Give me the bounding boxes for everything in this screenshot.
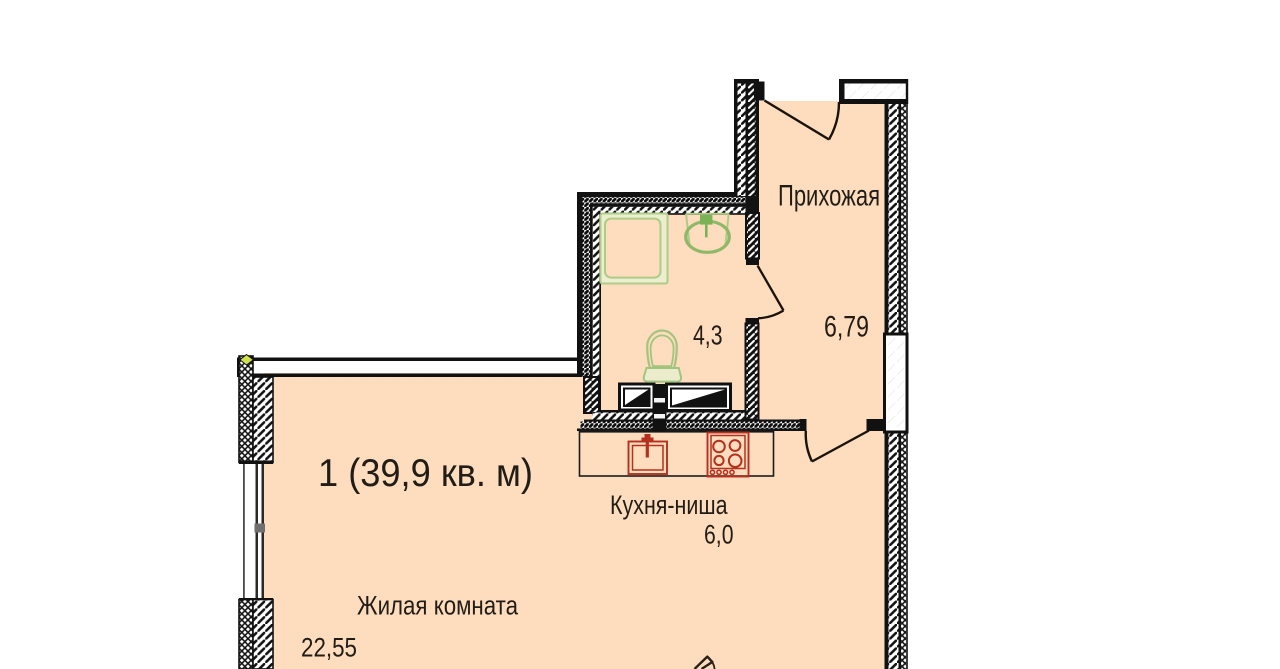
svg-text:Прихожая: Прихожая [778, 180, 880, 213]
svg-text:4,3: 4,3 [693, 320, 723, 351]
svg-text:22,55: 22,55 [301, 633, 357, 663]
svg-text:Кухня-ниша: Кухня-ниша [610, 490, 728, 520]
svg-text:6,79: 6,79 [824, 311, 869, 344]
svg-text:Жилая комната: Жилая комната [357, 591, 519, 621]
svg-text:6,0: 6,0 [704, 520, 734, 550]
svg-text:1 (39,9 кв. м): 1 (39,9 кв. м) [318, 452, 533, 495]
